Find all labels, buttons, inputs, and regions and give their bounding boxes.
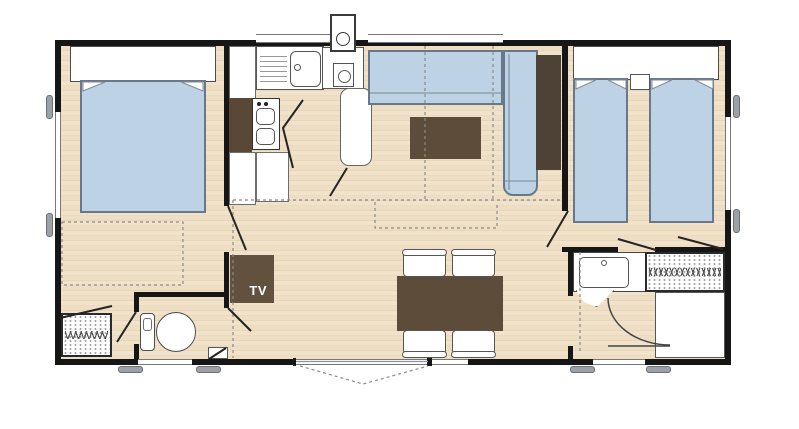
double-bed bbox=[80, 80, 206, 213]
window-handle-bath-1 bbox=[570, 366, 595, 373]
coffee-table bbox=[410, 117, 481, 159]
bottom-fixed-window bbox=[432, 359, 468, 365]
sink-faucet bbox=[294, 64, 301, 71]
roof-vent-cap bbox=[336, 32, 350, 46]
wall-tv-stub bbox=[224, 252, 229, 308]
right-wall-window bbox=[725, 117, 731, 210]
wall-bath-hall-lower bbox=[568, 346, 573, 359]
entry-step bbox=[208, 347, 228, 359]
dining-table bbox=[397, 276, 503, 331]
sofa-top-section bbox=[368, 50, 503, 105]
sliding-door-swing-dashes bbox=[300, 366, 428, 384]
stove-knob-2 bbox=[264, 102, 268, 106]
sofa-right-section bbox=[503, 50, 538, 196]
dining-chair-ne bbox=[452, 252, 495, 277]
tall-dark-cabinet bbox=[536, 55, 561, 170]
stove-burner-1 bbox=[256, 108, 275, 125]
wall-wc-left-lower bbox=[134, 344, 139, 359]
chair-back bbox=[451, 351, 496, 358]
dining-chair-se bbox=[452, 330, 495, 355]
window-handle-bath-2 bbox=[646, 366, 671, 373]
sink-drainboard bbox=[260, 52, 287, 84]
dining-chair-nw bbox=[403, 252, 446, 277]
top-window-over-sink bbox=[256, 34, 330, 43]
kitchen-cabinet-lower bbox=[229, 152, 256, 205]
toilet-flush-knob bbox=[143, 318, 152, 331]
kitchen-counter-brown bbox=[229, 98, 252, 152]
window-handle-wc-1 bbox=[118, 366, 143, 373]
stove-burner-2 bbox=[256, 128, 275, 145]
shower bbox=[655, 292, 725, 358]
window-handle-right-2 bbox=[733, 209, 740, 233]
single-bed-right bbox=[649, 78, 714, 223]
wardrobe-hatch-bedroom1 bbox=[61, 313, 112, 357]
door-jamb-tick-center bbox=[427, 358, 432, 366]
chair-back bbox=[451, 249, 496, 256]
hatch-zigzag bbox=[649, 268, 721, 276]
wall-wc-top bbox=[134, 292, 229, 297]
window-handle-left-1 bbox=[46, 95, 53, 119]
dining-chair-sw bbox=[403, 330, 446, 355]
bottom-window-wc bbox=[138, 359, 192, 365]
left-wall-window bbox=[55, 112, 61, 218]
kitchen-cabinet-upper bbox=[229, 46, 256, 100]
stove-knob-1 bbox=[257, 102, 261, 106]
wall-wc-left-upper bbox=[134, 292, 139, 312]
toilet-bowl bbox=[156, 312, 196, 352]
basin-faucet bbox=[601, 260, 607, 266]
chair-back bbox=[402, 249, 447, 256]
wall-living-bedroom2 bbox=[562, 46, 568, 211]
top-window-over-sofa bbox=[368, 34, 503, 43]
floorplan-image: TV bbox=[0, 0, 799, 429]
headboard-bedroom1 bbox=[70, 46, 216, 82]
kitchen-appliance-cabinet bbox=[256, 152, 289, 202]
bathroom-storage-hatch bbox=[645, 252, 725, 292]
hatch-zigzag bbox=[65, 331, 108, 339]
door-jamb-tick-left bbox=[293, 358, 296, 366]
water-heater-dial bbox=[338, 70, 351, 83]
chair-back bbox=[402, 351, 447, 358]
bottom-window-bathroom bbox=[593, 359, 645, 365]
tv-label: TV bbox=[249, 283, 267, 298]
tv-cabinet: TV bbox=[230, 255, 274, 303]
window-handle-left-2 bbox=[46, 213, 53, 237]
single-bed-left bbox=[573, 78, 628, 223]
window-handle-wc-2 bbox=[196, 366, 221, 373]
window-handle-right-1 bbox=[733, 95, 740, 118]
sliding-patio-door bbox=[296, 359, 428, 365]
nightstand bbox=[630, 74, 650, 90]
